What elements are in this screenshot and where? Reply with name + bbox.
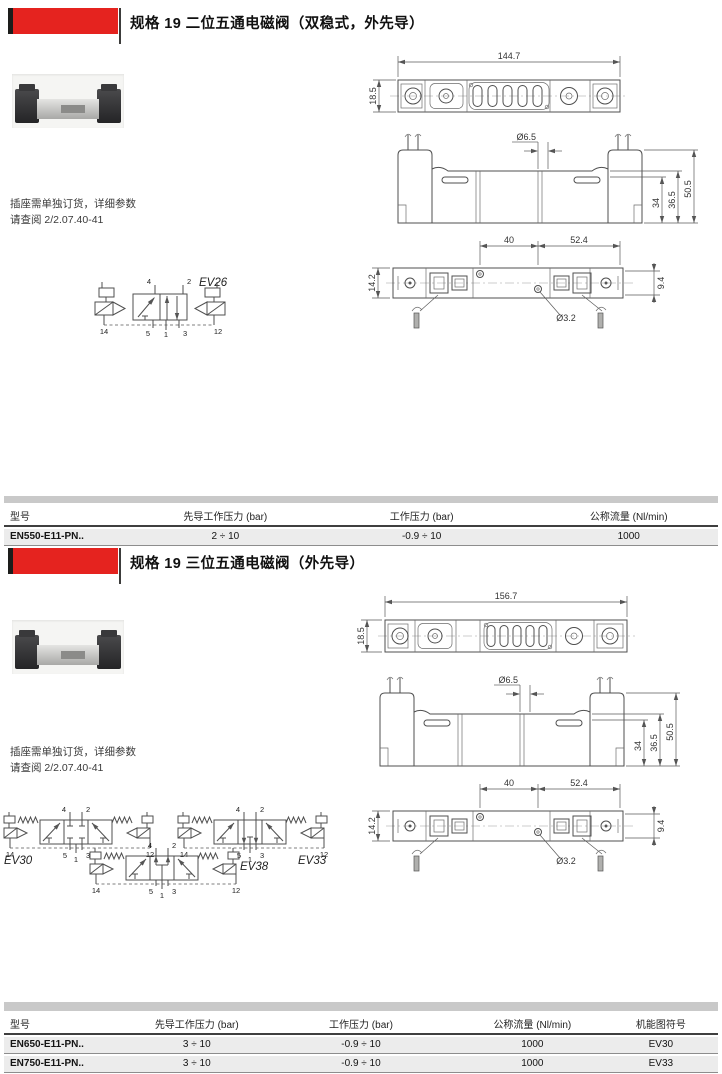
table2-top-band [4, 1002, 718, 1011]
svg-text:12: 12 [214, 327, 222, 336]
section1-title: 规格 19 二位五通电磁阀（双稳式，外先导） [130, 12, 424, 33]
spec-table-2: 型号 先导工作压力 (bar) 工作压力 (bar) 公称流量 (Nl/min)… [4, 1002, 718, 1074]
dim-depth-14-2: 14.2 [367, 817, 377, 835]
dim-depth-9-4: 9.4 [656, 820, 666, 833]
svg-text:5: 5 [146, 329, 150, 338]
dim-hole-bottom: Ø3.2 [556, 856, 576, 866]
table1-header-pilot-pressure: 先导工作压力 (bar) [147, 508, 304, 523]
section1-divider-rule [119, 8, 121, 44]
cell-model: EN650-E11-PN.. [4, 1039, 133, 1050]
pneumatic-symbol-ev26: 4 2 14 5 1 3 12 [93, 276, 241, 338]
table2-header-pilot-pressure: 先导工作压力 (bar) [133, 1016, 262, 1031]
dim-width-40: 40 [504, 235, 514, 245]
dim-hole-bottom: Ø3.2 [556, 313, 576, 323]
dim-depth-14-2: 14.2 [367, 274, 377, 292]
dim-height-50-5: 50.5 [683, 180, 693, 198]
svg-text:4: 4 [236, 805, 240, 814]
dim-depth-9-4: 9.4 [656, 277, 666, 290]
cell-working-pressure: -0.9 ÷ 10 [304, 531, 540, 542]
cell-pilot-pressure: 3 ÷ 10 [133, 1039, 262, 1050]
drawing-bottom-view-2: 40 52.4 14.2 9.4 Ø3.2 [368, 778, 722, 883]
svg-text:14: 14 [100, 327, 108, 336]
svg-text:4: 4 [62, 805, 66, 814]
valve-body [37, 99, 99, 119]
table2-row-en750: EN750-E11-PN.. 3 ÷ 10 -0.9 ÷ 10 1000 EV3… [4, 1056, 718, 1073]
dim-overall-depth: 18.5 [356, 627, 366, 645]
note-line2: 请查阅 2/2.07.40-41 [10, 760, 136, 776]
table2-header-working-pressure: 工作压力 (bar) [261, 1016, 461, 1031]
dim-overall-depth: 18.5 [368, 87, 378, 105]
cell-working-pressure: -0.9 ÷ 10 [261, 1039, 461, 1050]
product-photo-bistable-valve [12, 74, 124, 128]
svg-text:4: 4 [147, 277, 151, 286]
table2-row-en650: EN650-E11-PN.. 3 ÷ 10 -0.9 ÷ 10 1000 EV3… [4, 1037, 718, 1054]
cell-pilot-pressure: 3 ÷ 10 [133, 1058, 262, 1069]
drawing-bottom-view-1: 40 52.4 14.2 9.4 Ø3.2 [368, 235, 722, 340]
drawing-top-view-1: 144.7 18.5 [360, 50, 722, 128]
svg-text:3: 3 [260, 851, 264, 860]
cell-pilot-pressure: 2 ÷ 10 [147, 531, 304, 542]
dim-overall-width: 156.7 [495, 591, 518, 601]
note-line1: 插座需单独订货，详细参数 [10, 744, 136, 760]
cell-symbol: EV33 [604, 1058, 718, 1069]
cell-working-pressure: -0.9 ÷ 10 [261, 1058, 461, 1069]
table1-top-band [4, 496, 718, 503]
svg-text:2: 2 [260, 805, 264, 814]
section1-red-banner [8, 8, 118, 34]
svg-text:2: 2 [172, 841, 176, 850]
table2-header-flow: 公称流量 (Nl/min) [461, 1016, 604, 1031]
section1-note: 插座需单独订货，详细参数 请查阅 2/2.07.40-41 [10, 196, 136, 228]
dim-width-52-4: 52.4 [570, 778, 588, 788]
pneumatic-symbol-ev38: 4 2 14 5 1 3 12 [88, 842, 248, 900]
svg-text:5: 5 [149, 887, 153, 896]
cell-flow: 1000 [461, 1058, 604, 1069]
svg-text:14: 14 [92, 886, 100, 895]
table2-header-row: 型号 先导工作压力 (bar) 工作压力 (bar) 公称流量 (Nl/min)… [4, 1013, 718, 1035]
dim-height-36-5: 36.5 [667, 191, 677, 209]
svg-text:4: 4 [148, 841, 152, 850]
valve-pilot-left [15, 89, 39, 123]
valve-body [37, 645, 99, 665]
note-line2: 请查阅 2/2.07.40-41 [10, 212, 136, 228]
cell-flow: 1000 [539, 531, 718, 542]
svg-text:12: 12 [232, 886, 240, 895]
svg-text:1: 1 [160, 891, 164, 900]
symbol-label-ev30: EV30 [4, 855, 32, 867]
cell-flow: 1000 [461, 1039, 604, 1050]
symbol-label-ev33: EV33 [298, 855, 326, 867]
valve-pilot-right [97, 89, 121, 123]
table1-header-working-pressure: 工作压力 (bar) [304, 508, 540, 523]
svg-text:3: 3 [172, 887, 176, 896]
dim-height-36-5: 36.5 [649, 734, 659, 752]
section2-title: 规格 19 三位五通电磁阀（外先导） [130, 552, 364, 573]
cell-symbol: EV30 [604, 1039, 718, 1050]
table1-header-row: 型号 先导工作压力 (bar) 工作压力 (bar) 公称流量 (Nl/min) [4, 505, 718, 527]
section2-red-banner [8, 548, 118, 574]
cell-model: EN550-E11-PN.. [4, 531, 147, 542]
dim-height-50-5: 50.5 [665, 723, 675, 741]
valve-pilot-right [97, 635, 121, 669]
dim-width-40: 40 [504, 778, 514, 788]
dim-height-34: 34 [651, 198, 661, 208]
dim-height-34: 34 [633, 741, 643, 751]
dim-hole-top: Ø6.5 [498, 675, 518, 685]
dim-width-52-4: 52.4 [570, 235, 588, 245]
svg-text:5: 5 [63, 851, 67, 860]
spec-table-1: 型号 先导工作压力 (bar) 工作压力 (bar) 公称流量 (Nl/min)… [4, 496, 718, 546]
section2-note: 插座需单独订货，详细参数 请查阅 2/2.07.40-41 [10, 744, 136, 776]
dim-hole-top: Ø6.5 [516, 132, 536, 142]
svg-text:2: 2 [187, 277, 191, 286]
table2-header-symbol: 机能图符号 [604, 1016, 718, 1031]
dim-overall-width: 144.7 [498, 51, 521, 61]
product-photo-three-position-valve [12, 620, 124, 674]
datasheet-page: 规格 19 二位五通电磁阀（双稳式，外先导） 插座需单独订货，详细参数 请查阅 … [0, 0, 722, 1074]
symbol-label-ev38: EV38 [240, 861, 268, 873]
svg-text:2: 2 [86, 805, 90, 814]
drawing-front-view-1: Ø6.5 34 36.5 50.5 [378, 125, 722, 243]
valve-pilot-left [15, 635, 39, 669]
note-line1: 插座需单独订货，详细参数 [10, 196, 136, 212]
table1-row-en550: EN550-E11-PN.. 2 ÷ 10 -0.9 ÷ 10 1000 [4, 529, 718, 546]
table1-header-flow: 公称流量 (Nl/min) [539, 508, 718, 523]
section2-divider-rule [119, 548, 121, 584]
table2-header-model: 型号 [4, 1016, 133, 1031]
svg-text:1: 1 [164, 330, 168, 339]
table1-header-model: 型号 [4, 508, 147, 523]
svg-text:3: 3 [183, 329, 187, 338]
drawing-top-view-2: 156.7 18.5 [360, 590, 722, 672]
svg-text:1: 1 [74, 855, 78, 864]
drawing-front-view-2: Ø6.5 34 36.5 50.5 [360, 668, 704, 786]
cell-model: EN750-E11-PN.. [4, 1058, 133, 1069]
